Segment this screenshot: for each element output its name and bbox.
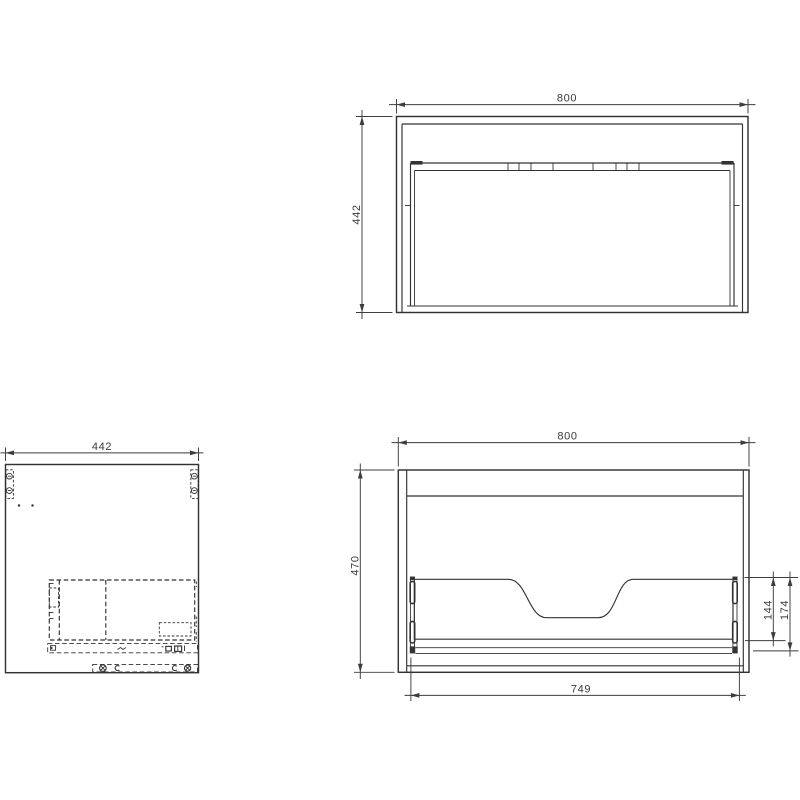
hidden-runner-strip-upper <box>48 644 198 653</box>
dim-front-height: 470 <box>349 464 394 680</box>
dim-label-top-width: 800 <box>557 93 577 105</box>
dim-front-width: 800 <box>392 430 756 466</box>
pilot-hole-dot <box>18 504 20 506</box>
clip-icon <box>115 666 119 671</box>
dim-label-top-depth: 442 <box>351 204 363 224</box>
cam-fitting-left <box>6 470 14 499</box>
dim-drawer-heights: 144 174 <box>745 572 799 657</box>
dim-label-side-width: 442 <box>92 441 112 453</box>
screw-cross-icon <box>100 665 107 672</box>
front-view: 800 470 749 <box>349 430 798 701</box>
dim-top-width: 800 <box>389 93 756 114</box>
side-panel-outline <box>6 465 199 673</box>
side-view: 442 <box>1 441 204 673</box>
dim-drawer-width: 749 <box>405 658 746 702</box>
top-view: 800 442 <box>351 93 756 320</box>
rail-right-bracket <box>722 161 734 165</box>
pilot-hole-dot <box>31 504 33 506</box>
screw-cross-icon <box>185 665 191 671</box>
plan-outer-outline <box>397 117 749 313</box>
clip-icon <box>172 666 176 671</box>
dim-label-front-width: 800 <box>557 430 577 442</box>
drawer-back-panel-cutout <box>414 579 733 639</box>
cabinet-drawing-svg: 800 442 <box>0 0 800 800</box>
drawer-rail-slot-ticks <box>508 163 639 171</box>
slide-fitting-left <box>410 577 415 653</box>
front-outer-outline <box>398 470 749 672</box>
dim-top-depth: 442 <box>351 110 393 319</box>
dim-label-total-height: 174 <box>779 600 791 620</box>
technical-drawing-canvas: 800 442 <box>0 0 800 800</box>
hidden-runner-strip-lower <box>93 664 198 672</box>
rail-left-bracket <box>411 161 423 165</box>
dim-label-drawer-width: 749 <box>571 684 591 696</box>
slide-fitting-right <box>732 577 737 653</box>
hidden-slide-assembly <box>49 580 196 642</box>
cam-fitting-right <box>191 470 198 499</box>
dim-side-width: 442 <box>1 441 204 461</box>
dim-label-front-height: 470 <box>349 555 361 575</box>
dim-label-back-height: 144 <box>762 600 774 620</box>
